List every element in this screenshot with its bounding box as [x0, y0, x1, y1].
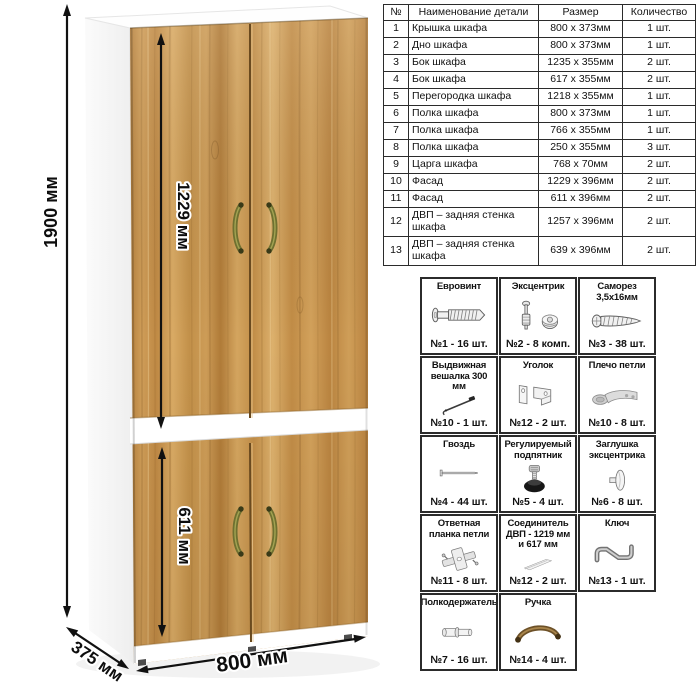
lower-facade-dimension-label: 611 мм: [175, 507, 194, 564]
parts-row: 8Полка шкафа250 x 355мм3 шт.: [384, 140, 696, 157]
cam-cover-icon: [580, 461, 654, 496]
hardware-item: Соединитель ДВП - 1219 мм и 617 мм №12 -…: [499, 514, 577, 592]
parts-row: 2Дно шкафа800 x 373мм1 шт.: [384, 38, 696, 55]
col-size: Размер: [539, 5, 623, 21]
parts-row: 3Бок шкафа1235 x 355мм2 шт.: [384, 55, 696, 72]
hardware-grid: Евровинт №1 - 16 шт. Эксцентрик: [420, 277, 656, 671]
hardware-item: Гвоздь №4 - 44 шт.: [420, 435, 498, 513]
hdf-connector-icon: [501, 551, 575, 575]
col-number: №: [384, 5, 409, 21]
handle-icon: [501, 609, 575, 654]
hardware-item: Эксцентрик №2 - 8 комп.: [499, 277, 577, 355]
parts-row: 1Крышка шкафа800 x 373мм1 шт.: [384, 21, 696, 38]
pullout-hanger-icon: [422, 393, 496, 417]
hex-key-icon: [580, 530, 654, 575]
parts-row: 12ДВП – задняя стенка шкафа1257 x 396мм2…: [384, 208, 696, 237]
cam-lock-icon: [501, 293, 575, 338]
wardrobe-doors: [130, 18, 368, 668]
hardware-item: Выдвижная вешалка 300 мм №10 - 1 шт.: [420, 356, 498, 434]
parts-row: 13ДВП – задняя стенка шкафа639 x 396мм2 …: [384, 237, 696, 266]
height-dimension: 1900 мм: [41, 4, 71, 618]
parts-row: 5Перегородка шкафа1218 x 355мм1 шт.: [384, 89, 696, 106]
hardware-item: Ручка №14 - 4 шт.: [499, 593, 577, 671]
shelf-pin-icon: [422, 609, 496, 654]
parts-row: 9Царга шкафа768 x 70мм2 шт.: [384, 157, 696, 174]
hardware-item: Ключ №13 - 1 шт.: [578, 514, 656, 592]
hardware-item: Плечо петли №10 - 8 шт.: [578, 356, 656, 434]
parts-row: 10Фасад1229 x 396мм2 шт.: [384, 174, 696, 191]
parts-row: 6Полка шкафа800 x 373мм1 шт.: [384, 106, 696, 123]
col-quantity: Количество: [623, 5, 696, 21]
upper-facade-dimension-label: 1229 мм: [174, 182, 193, 250]
parts-table: № Наименование детали Размер Количество …: [383, 4, 696, 266]
parts-row: 11Фасад611 x 396мм2 шт.: [384, 191, 696, 208]
hardware-item: Саморез 3,5x16мм №3 - 38 шт.: [578, 277, 656, 355]
col-part-name: Наименование детали: [409, 5, 539, 21]
confirmat-screw-icon: [422, 293, 496, 338]
screw-icon: [580, 303, 654, 338]
hardware-item: Регулируемый подпятник №5 - 4 шт.: [499, 435, 577, 513]
empty-grid-slot: [578, 593, 656, 671]
hardware-item: Ответная планка петли №11 - 8 шт.: [420, 514, 498, 592]
corner-bracket-icon: [501, 372, 575, 417]
hinge-plate-icon: [422, 540, 496, 575]
parts-row: 7Полка шкафа766 x 355мм1 шт.: [384, 123, 696, 140]
wardrobe-illustration: 1900 мм 1229 мм 611 мм 375 мм 80: [0, 0, 380, 700]
wardrobe-side-panel: [85, 18, 134, 664]
hardware-item: Полкодержатель №7 - 16 шт.: [420, 593, 498, 671]
hardware-item: Евровинт №1 - 16 шт.: [420, 277, 498, 355]
height-dimension-label: 1900 мм: [41, 176, 61, 248]
parts-table-header: № Наименование детали Размер Количество: [384, 5, 696, 21]
parts-row: 4Бок шкафа617 x 355мм2 шт.: [384, 72, 696, 89]
hardware-item: Уголок №12 - 2 шт.: [499, 356, 577, 434]
assembly-sheet: 1900 мм 1229 мм 611 мм 375 мм 80: [0, 0, 700, 700]
nail-icon: [422, 451, 496, 496]
hardware-item: Заглушка эксцентрика №6 - 8 шт.: [578, 435, 656, 513]
hinge-arm-icon: [580, 372, 654, 417]
adjustable-foot-icon: [501, 461, 575, 496]
